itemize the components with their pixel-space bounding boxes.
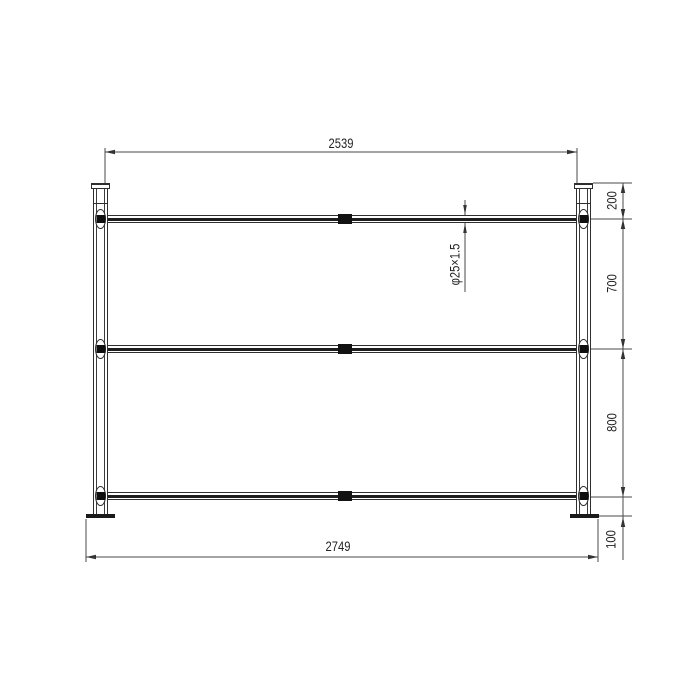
rail-fitting-clamp bbox=[96, 492, 105, 500]
technical-drawing-canvas: 2539 2749 200 700 800 100 φ25×1.5 bbox=[0, 0, 700, 700]
left-post-cap bbox=[91, 183, 110, 189]
rail-fitting bbox=[578, 339, 589, 359]
rail-fitting-clamp bbox=[96, 345, 105, 353]
left-base-plate bbox=[86, 514, 115, 518]
right-post-sleeve-joint bbox=[576, 203, 591, 204]
dim-label-top-width: 2539 bbox=[309, 136, 373, 151]
rail-fitting-clamp bbox=[579, 215, 588, 223]
middle-rail-splice bbox=[338, 344, 352, 354]
rail-fitting-clamp bbox=[579, 345, 588, 353]
left-post-sleeve-joint bbox=[93, 203, 108, 204]
right-post-cap bbox=[574, 183, 593, 189]
rail-fitting bbox=[95, 486, 106, 506]
dim-right-chain-line bbox=[591, 183, 632, 560]
bottom-rail-splice bbox=[338, 491, 352, 501]
rail-fitting-clamp bbox=[96, 215, 105, 223]
rail-fitting bbox=[578, 486, 589, 506]
dim-label-segment-200: 200 bbox=[605, 169, 620, 233]
rail-fitting-clamp bbox=[579, 492, 588, 500]
tube-spec-label: φ25×1.5 bbox=[448, 233, 463, 297]
rail-fitting bbox=[578, 209, 589, 229]
top-rail-splice bbox=[338, 214, 352, 224]
right-base-plate bbox=[570, 514, 599, 518]
dim-label-segment-800: 800 bbox=[605, 391, 620, 455]
dim-label-segment-700: 700 bbox=[605, 252, 620, 316]
dim-label-bottom-width: 2749 bbox=[306, 539, 370, 554]
dim-top-width-line bbox=[105, 148, 577, 184]
tube-callout-line bbox=[463, 200, 467, 292]
rail-fitting bbox=[95, 209, 106, 229]
dim-label-segment-100: 100 bbox=[604, 508, 619, 572]
rail-fitting bbox=[95, 339, 106, 359]
